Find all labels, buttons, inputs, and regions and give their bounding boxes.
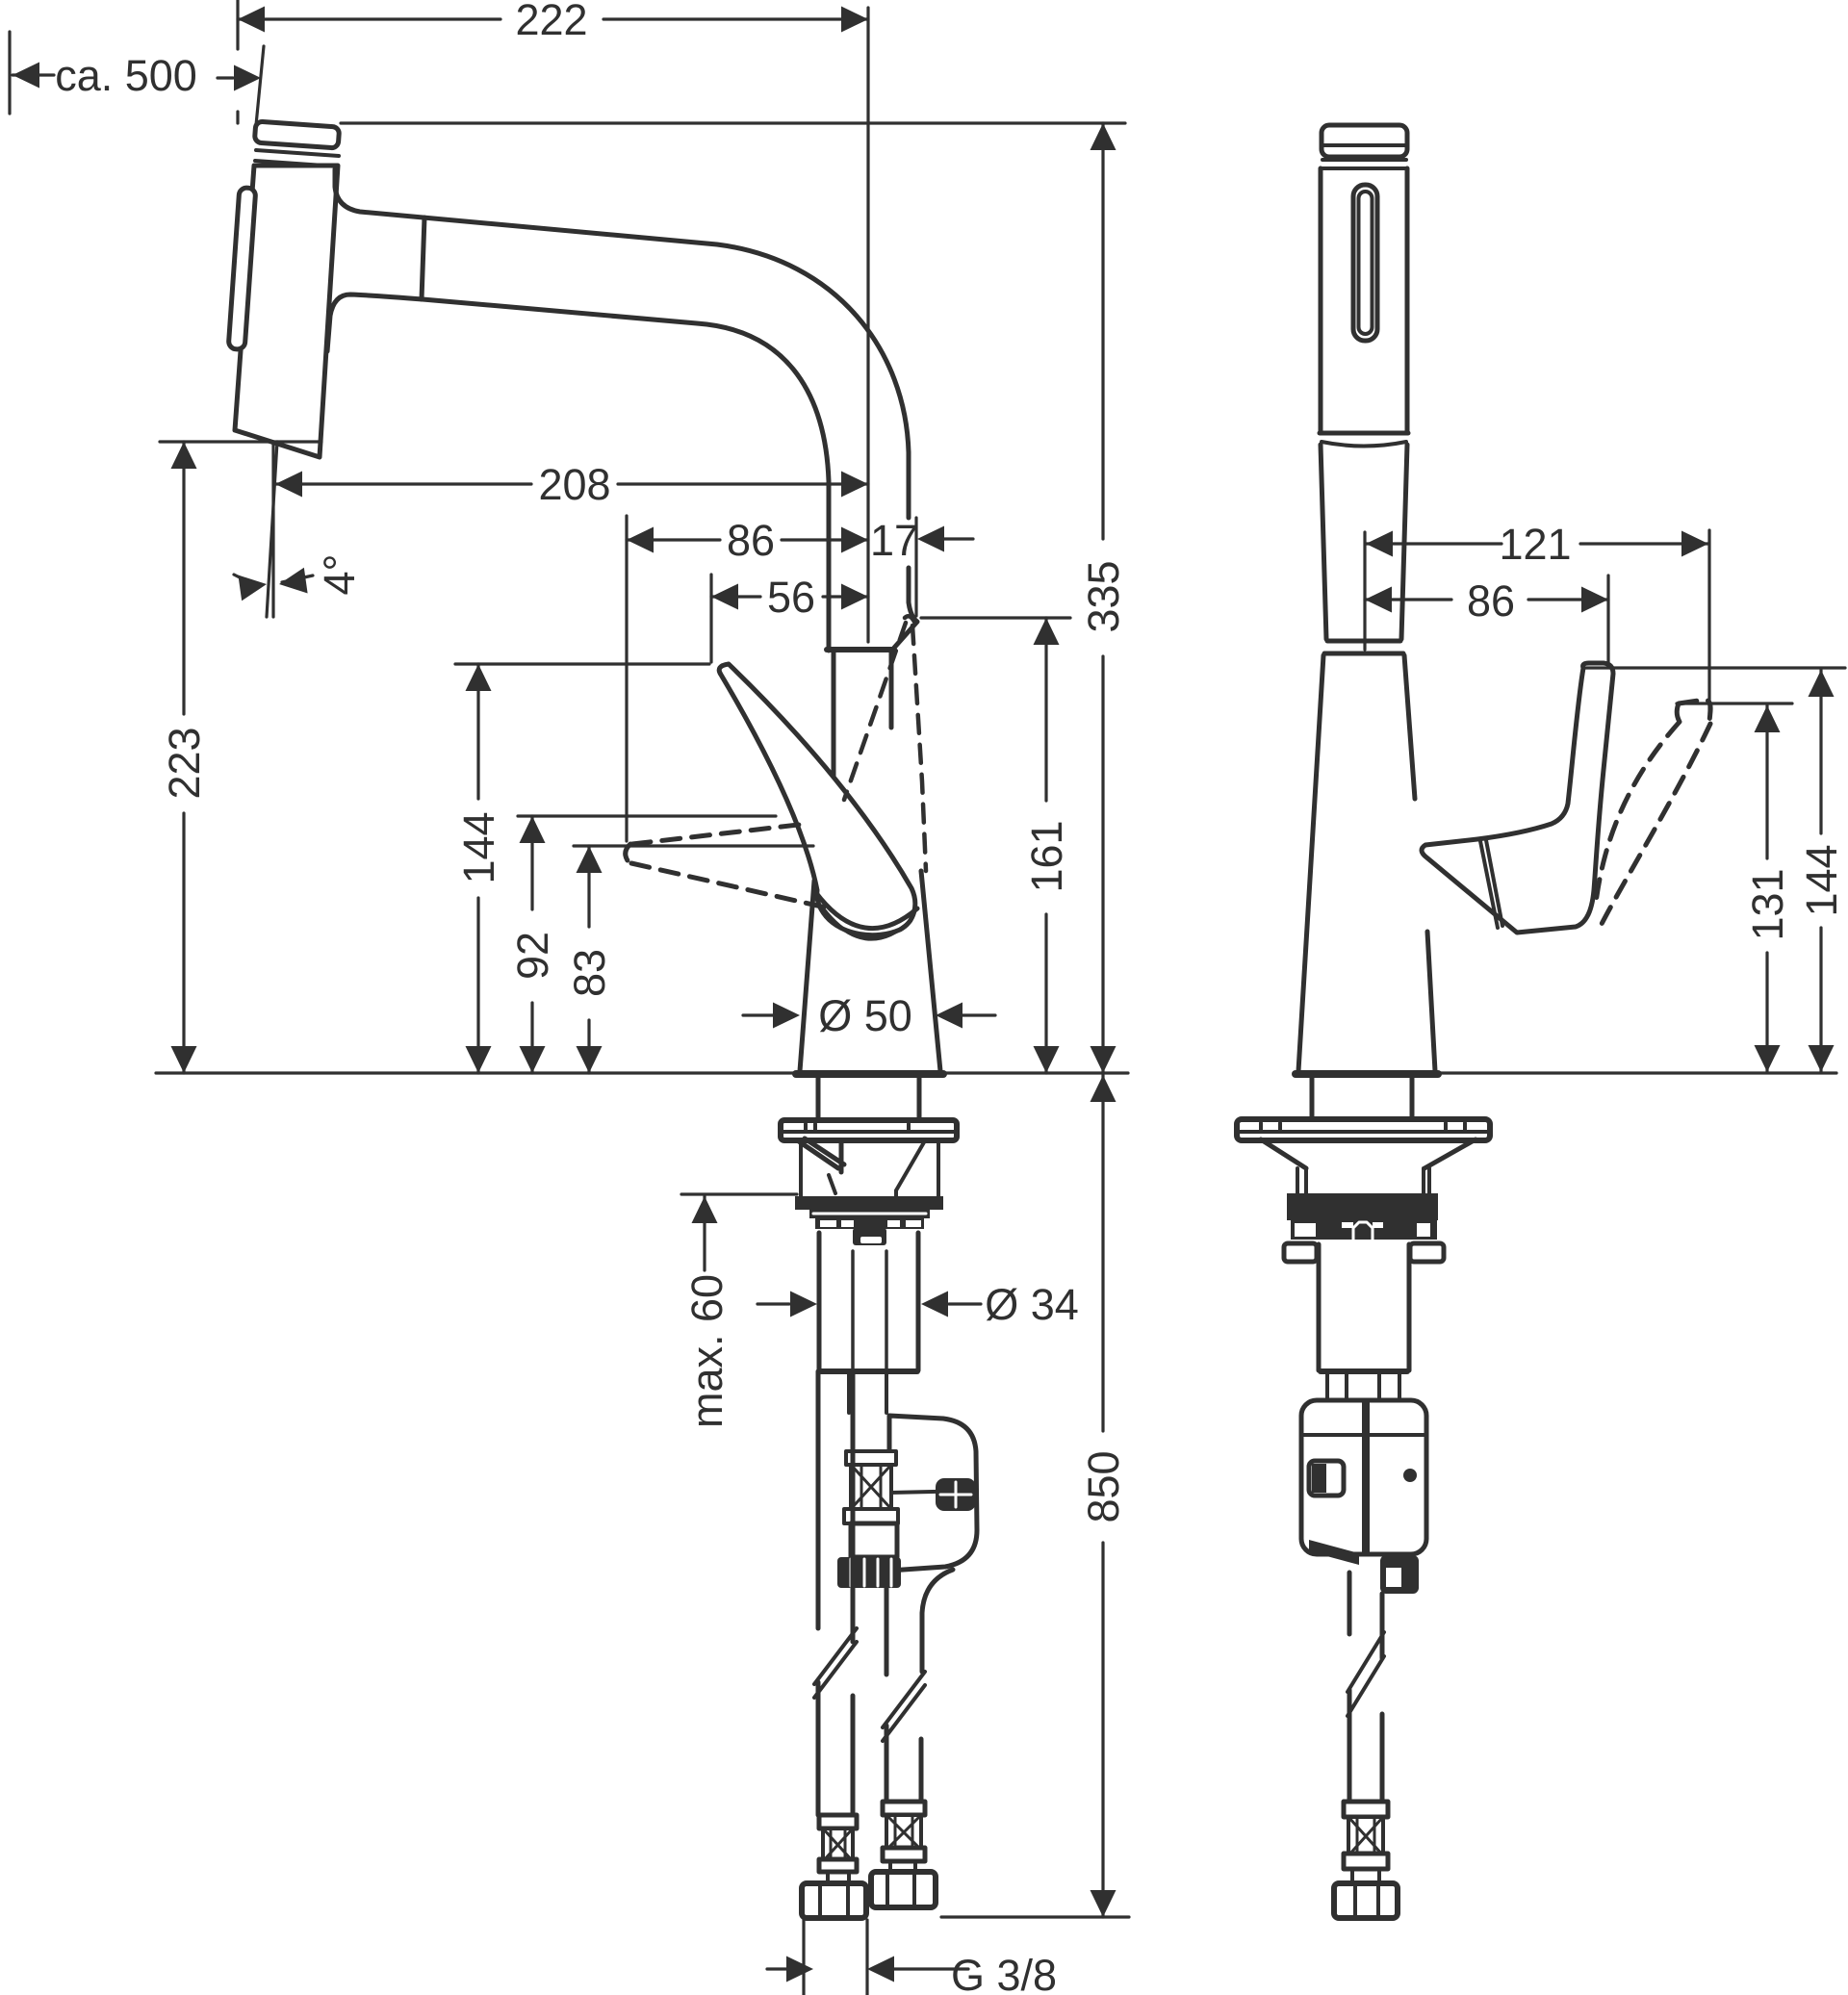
svg-text:G 3/8: G 3/8 — [951, 1951, 1057, 1995]
svg-text:223: 223 — [160, 727, 209, 799]
svg-text:121: 121 — [1499, 520, 1571, 569]
svg-text:92: 92 — [508, 932, 557, 980]
svg-text:Ø 34: Ø 34 — [985, 1280, 1079, 1329]
svg-text:56: 56 — [767, 573, 815, 622]
svg-text:ca. 500: ca. 500 — [55, 51, 197, 100]
svg-text:208: 208 — [538, 460, 610, 509]
svg-text:144: 144 — [1797, 844, 1846, 916]
svg-text:222: 222 — [515, 0, 587, 44]
svg-text:161: 161 — [1022, 820, 1071, 892]
svg-text:850: 850 — [1079, 1450, 1128, 1522]
svg-text:17: 17 — [870, 516, 918, 565]
svg-text:4°: 4° — [315, 553, 364, 595]
svg-text:335: 335 — [1079, 560, 1128, 632]
svg-text:Ø 50: Ø 50 — [818, 991, 912, 1040]
svg-text:max. 60: max. 60 — [682, 1274, 731, 1428]
svg-text:86: 86 — [727, 516, 775, 565]
svg-text:144: 144 — [454, 811, 503, 883]
svg-text:83: 83 — [565, 949, 614, 997]
svg-text:131: 131 — [1743, 868, 1792, 940]
svg-text:86: 86 — [1467, 576, 1515, 626]
